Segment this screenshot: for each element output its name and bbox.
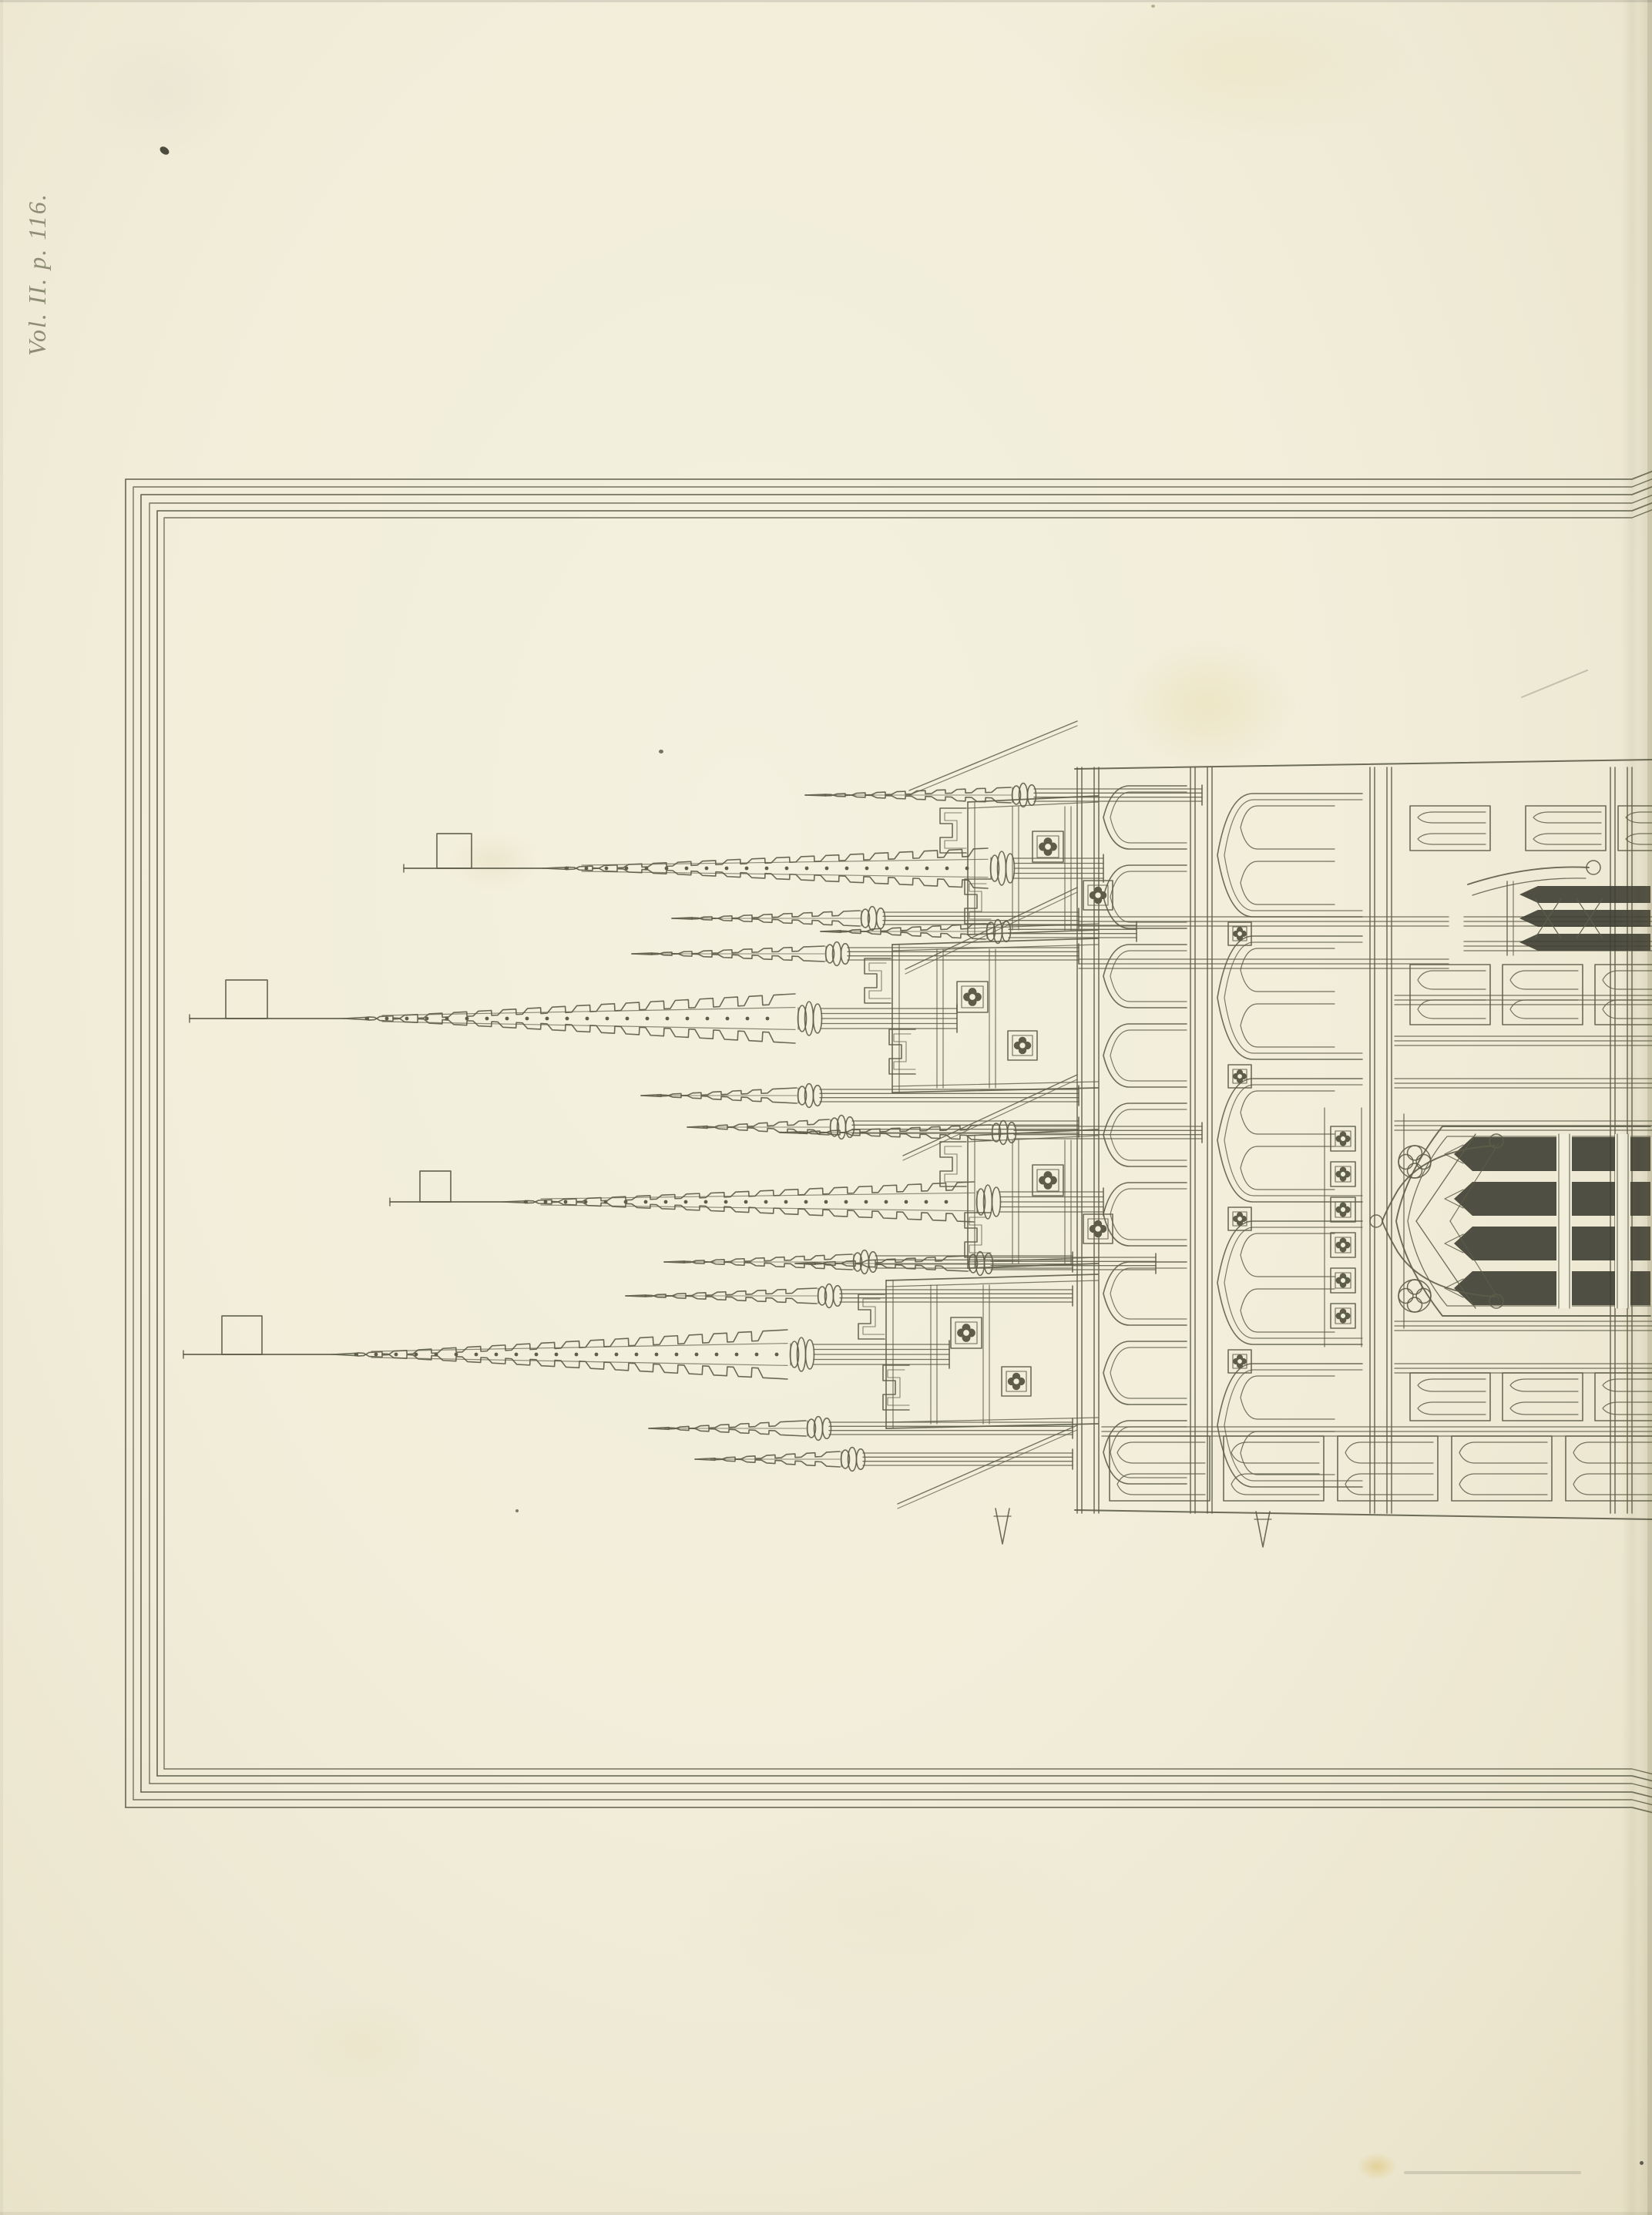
pinnacle-cluster (183, 1250, 1098, 1472)
smudge-mark (1404, 2171, 1581, 2174)
pinnacle-cluster (190, 907, 1098, 1139)
sub-pinnacle (687, 1116, 1079, 1139)
sub-pinnacle (641, 1084, 1079, 1108)
pinnacle-cluster (390, 1121, 1202, 1276)
turret (940, 1129, 1113, 1268)
plate-frame (126, 471, 1652, 1813)
weather-vane (190, 980, 344, 1022)
sub-pinnacle (649, 1417, 1073, 1441)
engraving-plate (0, 0, 1652, 2215)
turret (940, 796, 1113, 935)
turret (865, 938, 1098, 1092)
turret (858, 1274, 1098, 1428)
sub-pinnacle (632, 942, 1079, 966)
crocketed-spire (333, 1330, 949, 1379)
belfry-window (1370, 1114, 1650, 1328)
sub-pinnacle (795, 1252, 1156, 1276)
sub-pinnacle (626, 1284, 1073, 1308)
weather-vane (390, 1171, 502, 1206)
weather-vane (183, 1316, 333, 1358)
tower-body (898, 670, 1652, 1547)
tower-engraving (183, 670, 1652, 1547)
weather-vane (404, 834, 543, 872)
crocketed-spire (543, 848, 1103, 888)
sub-pinnacle (780, 1121, 1202, 1145)
sub-pinnacle (805, 784, 1202, 807)
sub-pinnacle (664, 1250, 1073, 1274)
scanned-plate-page: Vol. II. p. 116. (0, 0, 1652, 2215)
sub-pinnacle (695, 1448, 1073, 1472)
crocketed-spire (502, 1182, 1103, 1222)
